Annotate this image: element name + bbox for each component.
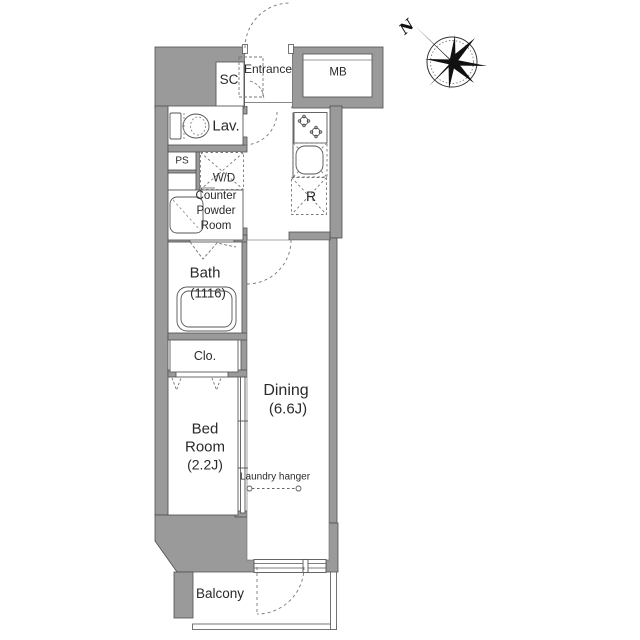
dining-window <box>254 560 326 573</box>
lavatory-door-arc <box>244 112 277 145</box>
compass-rose: N <box>395 15 487 89</box>
floor-plan-graphics: N <box>0 0 640 640</box>
label-closet: Clo. <box>194 349 216 363</box>
sliding-partition <box>238 377 249 513</box>
label-dining-size: (6.6J) <box>269 400 307 417</box>
sink-icon <box>293 143 327 177</box>
label-powder-room: Counter Powder Room <box>196 189 237 235</box>
label-refrigerator: R <box>306 188 316 204</box>
entrance-door-arc <box>245 3 290 48</box>
label-powder-line1: Counter <box>196 189 237 204</box>
label-dining: Dining <box>263 382 308 400</box>
label-shoe-closet: SC <box>220 72 239 88</box>
label-bedroom-line2: Room <box>185 439 225 457</box>
door-jamb-right <box>289 45 294 54</box>
label-powder-line2: Powder <box>196 204 237 219</box>
balcony-door-arc <box>257 567 304 614</box>
label-laundry-hanger: Laundry hanger <box>240 471 310 483</box>
label-meter-box: MB <box>329 66 346 79</box>
label-pipe-space: PS <box>175 155 188 167</box>
label-bedroom-line1: Bed <box>185 421 225 439</box>
label-bedroom: Bed Room (2.2J) <box>185 421 225 474</box>
room-storage-box <box>168 173 196 190</box>
floor-plan: N SC Entrance MB Lav. PS W/D Counter Pow… <box>0 0 640 640</box>
label-balcony: Balcony <box>196 586 244 602</box>
label-entrance: Entrance <box>244 63 292 77</box>
label-lavatory: Lav. <box>212 117 239 134</box>
stove-icon <box>294 113 327 144</box>
label-bath: Bath <box>190 264 221 281</box>
toilet-icon <box>170 113 209 139</box>
label-bedroom-size: (2.2J) <box>185 457 225 474</box>
label-bath-size: (1116) <box>190 287 226 302</box>
compass-north-label: N <box>395 15 419 39</box>
label-washer-dryer: W/D <box>213 172 235 185</box>
label-powder-line3: Room <box>196 220 237 235</box>
